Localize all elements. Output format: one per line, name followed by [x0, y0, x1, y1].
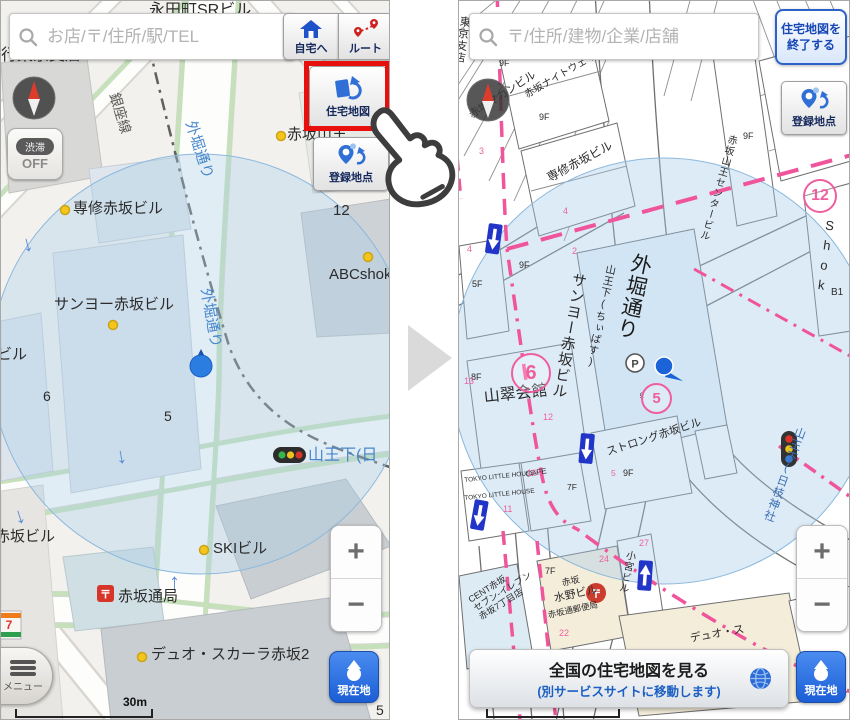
svg-text:〒: 〒 [591, 588, 602, 601]
search-input[interactable] [45, 26, 286, 48]
traffic-toggle-label: 渋滞 [16, 138, 54, 155]
route-icon [353, 18, 379, 39]
zoom-out-button[interactable]: − [331, 578, 381, 631]
registered-pin-icon [336, 143, 366, 168]
registered-pin-icon [799, 87, 829, 112]
compass-icon[interactable] [11, 75, 57, 126]
registered-points-button-label: 登録地点 [792, 113, 836, 129]
post-office-icon: 〒 [97, 585, 114, 602]
menu-icon [10, 660, 36, 664]
exit-button-line2: 終了する [787, 37, 835, 53]
traffic-light-icon [273, 447, 306, 463]
route-button-label: ルート [349, 40, 382, 56]
national-jutaku-map-link[interactable]: 全国の住宅地図を見る (別サービスサイトに移動します) [469, 649, 789, 708]
seven-eleven-icon: 7 [1, 611, 21, 639]
zoom-in-button[interactable]: + [331, 526, 381, 578]
route-button[interactable]: ルート [338, 13, 390, 60]
home-button-label: 自宅へ [295, 40, 328, 56]
traffic-toggle-state: OFF [22, 157, 48, 170]
national-map-link-subtitle: (別サービスサイトに移動します) [537, 681, 720, 700]
national-map-link-title: 全国の住宅地図を見る [549, 657, 709, 681]
map-label-circled-12: 12 [803, 179, 837, 213]
zoom-controls: + − [330, 525, 382, 632]
current-location-label: 現在地 [338, 682, 371, 698]
menu-button-label: メニュー [3, 678, 43, 693]
tap-hand-cursor [364, 104, 462, 214]
traffic-light-icon [781, 431, 797, 467]
location-drop-icon [809, 660, 833, 682]
search-icon [18, 27, 38, 47]
transition-arrow [408, 325, 452, 391]
home-button[interactable]: 自宅へ [283, 13, 339, 60]
map-label-circled-6: 6 [511, 353, 551, 393]
post-office-icon: 〒 [586, 583, 606, 603]
globe-icon [749, 667, 772, 695]
exit-button-line1: 住宅地図を [781, 21, 841, 37]
parking-icon: P [626, 354, 644, 372]
app-screenshot-comparison: { "colors": { "accent_blue": "#2f6fd6", … [0, 0, 850, 720]
left-phone-screenshot: ↓ ↓ ↓ ↑ 〒 7 [0, 0, 390, 720]
current-location-button[interactable]: 現在地 [796, 651, 846, 703]
current-location-button[interactable]: 現在地 [329, 651, 379, 703]
search-icon [478, 27, 498, 47]
traffic-toggle-button[interactable]: 渋滞 OFF [7, 128, 63, 180]
exit-jutaku-map-button[interactable]: 住宅地図を 終了する [775, 9, 847, 65]
svg-text:7: 7 [6, 618, 13, 632]
home-icon [299, 18, 323, 39]
right-phone-screenshot: 〒 P 東京支店 赤坂マカンビル 赤坂ナイトウェイビル 専修赤坂ビル 9F 9F… [458, 0, 850, 720]
current-location-label: 現在地 [805, 682, 838, 698]
scale-label: 30m [123, 695, 147, 709]
registered-points-button[interactable]: 登録地点 [781, 81, 847, 135]
search-bar[interactable] [9, 13, 295, 60]
zoom-out-button[interactable]: − [797, 578, 847, 631]
location-drop-icon [342, 660, 366, 682]
zoom-controls: + − [796, 525, 848, 632]
compass-icon[interactable] [465, 77, 511, 128]
svg-text:↑: ↑ [169, 569, 180, 594]
map-label-circled-5: 5 [641, 383, 672, 414]
svg-text:〒: 〒 [100, 588, 111, 601]
search-input[interactable] [505, 26, 750, 48]
zoom-in-button[interactable]: + [797, 526, 847, 578]
svg-text:P: P [631, 359, 638, 371]
search-bar[interactable] [469, 13, 759, 60]
